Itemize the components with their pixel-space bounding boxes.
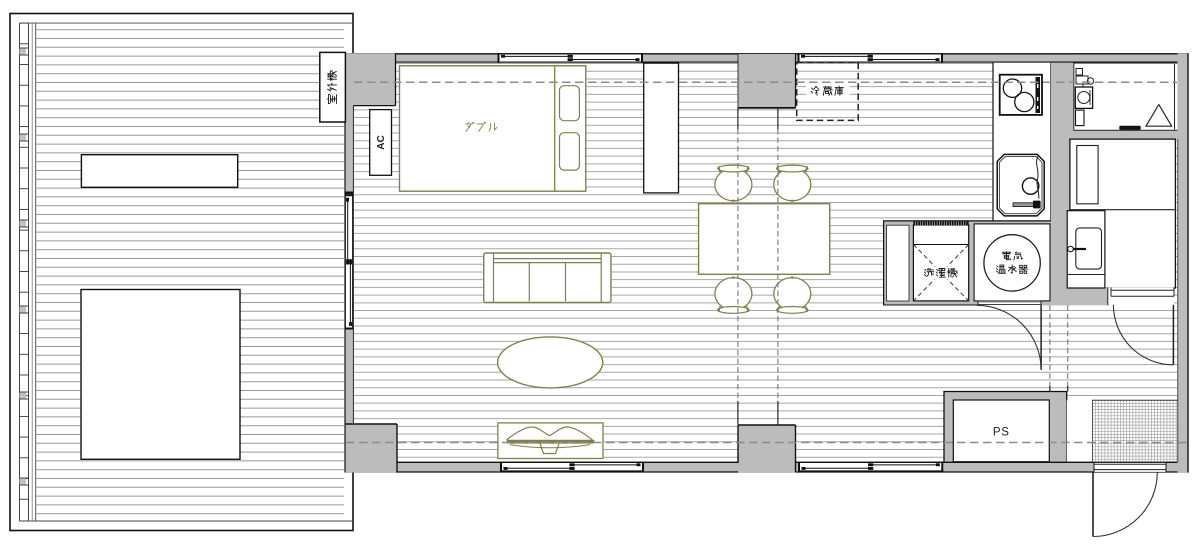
svg-text:PS: PS xyxy=(993,427,1010,439)
svg-text:AC: AC xyxy=(376,135,387,149)
